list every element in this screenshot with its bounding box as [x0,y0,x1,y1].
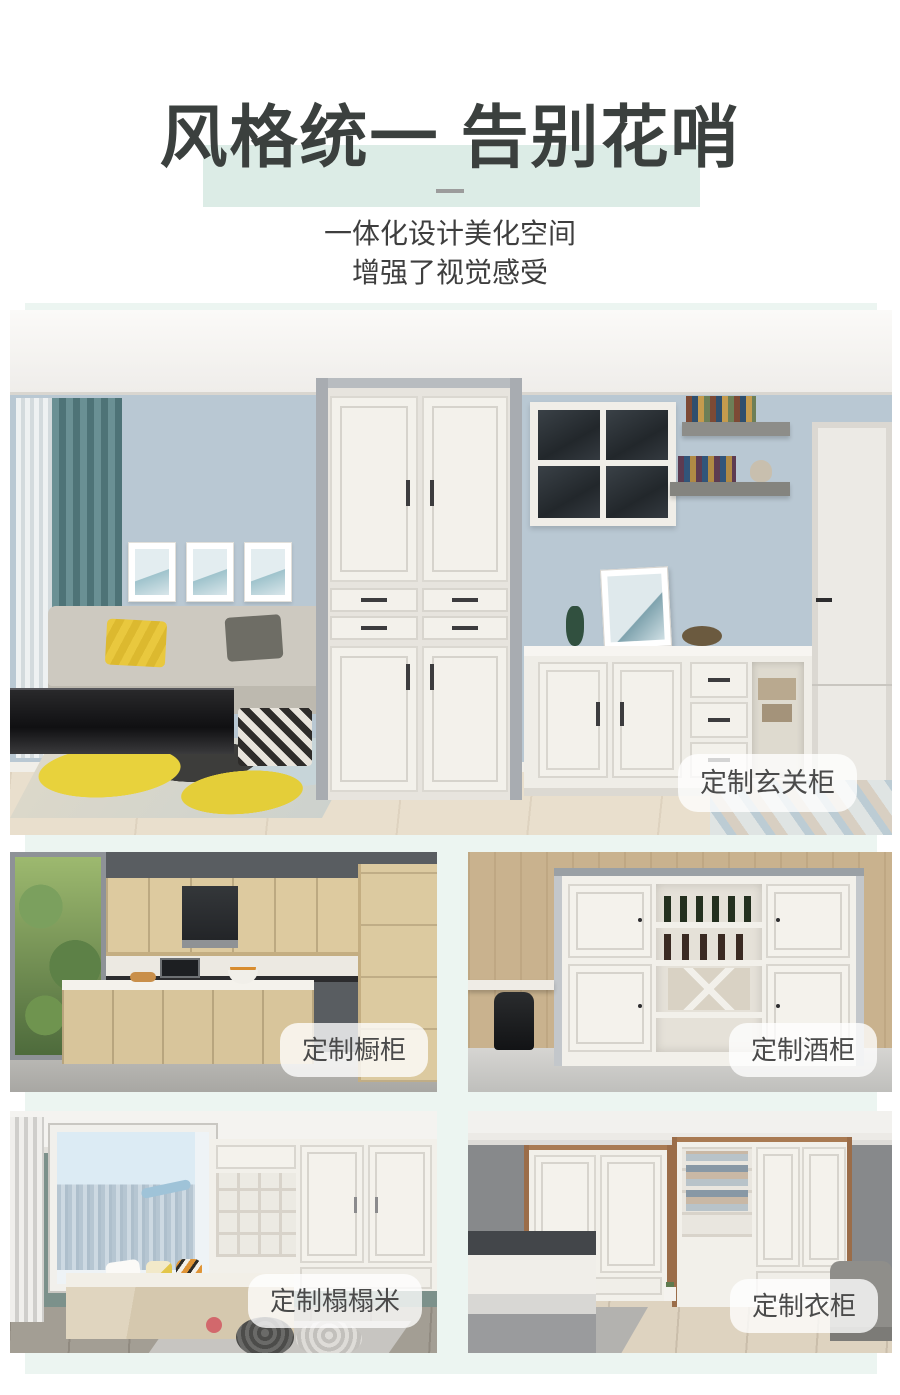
wine-cabinet-door [766,884,850,958]
wine-chair [494,992,534,1050]
hero-wall-shelf-upper [682,422,790,436]
photo-label-wine: 定制酒柜 [729,1023,877,1077]
hero-leaning-art [600,566,672,649]
hero-wall-shelf-lower [670,482,790,496]
hero-glass-pane [538,410,600,460]
hero-cabinet-drawer [422,616,508,640]
wine-shelf [656,960,762,966]
hero-yellow-pillow [105,618,167,667]
hero-books-on-shelf [678,456,736,482]
hero-ottoman-cubes [238,708,312,766]
tatami-wardrobe-door [300,1145,364,1263]
hero-cabinet-drawer [330,588,418,612]
hero-green-vase [566,606,584,646]
tatami-curtain [10,1117,44,1322]
hero-glass-pane [538,466,600,518]
hero-cabinet-door [422,646,508,792]
figure-kitchen: 定制橱柜 [10,852,437,1092]
wardrobe-door [802,1147,846,1267]
hero-sideboard-drawer [690,702,748,738]
hero-coffee-table [10,688,234,754]
wine-desk [468,980,554,990]
hero-cabinet-drawer [422,588,508,612]
wine-bottles [664,934,754,960]
wardrobe-door [756,1147,800,1267]
hero-door-handle [816,598,832,602]
hero-storage-box [758,678,796,700]
wine-shelf [656,1012,762,1018]
hero-gray-pillow [225,614,284,662]
kitchen-bread [130,972,156,982]
kitchen-range-hood [182,886,238,948]
wine-x-rack [668,968,750,1010]
hero-cabinet-door [330,396,418,582]
tatami-wardrobe-door [368,1145,432,1263]
wine-cabinet-door [568,964,652,1052]
hero-cabinet-drawer [330,616,418,640]
kitchen-oven [160,958,200,978]
photo-label-wardrobe: 定制衣柜 [730,1279,878,1333]
photo-label-entryway: 定制玄关柜 [678,754,857,812]
divider-dash [436,189,464,193]
figure-wine-cabinet: 定制酒柜 [468,852,892,1092]
page-title: 风格统一 告别花哨 [0,92,900,184]
hero-glass-pane [606,410,668,460]
hero-cabinet-door [330,646,418,792]
photo-label-tatami: 定制榻榻米 [248,1274,422,1328]
hero-decor-bowl [682,626,722,646]
subtitle-line1: 一体化设计美化空间 [0,212,900,252]
wine-cabinet-door [568,884,652,958]
tatami-red-ball [206,1317,222,1333]
wardrobe-plant [664,1287,676,1301]
hero-storage-box [762,704,792,722]
tatami-open-cubbies [216,1173,296,1257]
tatami-cubby-top-doors [216,1145,296,1169]
hero-sideboard-door [538,662,608,778]
figure-wardrobe: 定制衣柜 [468,1111,892,1353]
hero-glass-pane [606,466,668,518]
hero-sideboard-door [612,662,682,778]
hero-wall-art-2 [186,542,234,602]
subtitle-line2: 增强了视觉感受 [0,251,900,291]
wardrobe-door [600,1155,662,1273]
tatami-city-view [57,1132,195,1270]
page: 风格统一 告别花哨 一体化设计美化空间 增强了视觉感受 [0,0,900,1395]
hero-books-on-shelf [686,396,756,422]
wardrobe-bed [468,1255,596,1353]
hero-shelf-vase [750,460,772,482]
kitchen-island [62,980,314,1064]
hero-wall-art-3 [244,542,292,602]
hero-cabinet-door [422,396,508,582]
photo-label-kitchen: 定制橱柜 [280,1023,428,1077]
wine-shelf [656,922,762,928]
hero-room-door [812,422,892,794]
wine-bottles [664,896,754,922]
hero-figure-entryway: 定制玄关柜 [10,310,892,835]
hero-wall-art-1 [128,542,176,602]
wardrobe-bed-headboard [468,1231,596,1257]
figure-tatami: 定制榻榻米 [10,1111,437,1353]
hero-sideboard-drawer [690,662,748,698]
wardrobe-folded-clothes [686,1151,748,1211]
